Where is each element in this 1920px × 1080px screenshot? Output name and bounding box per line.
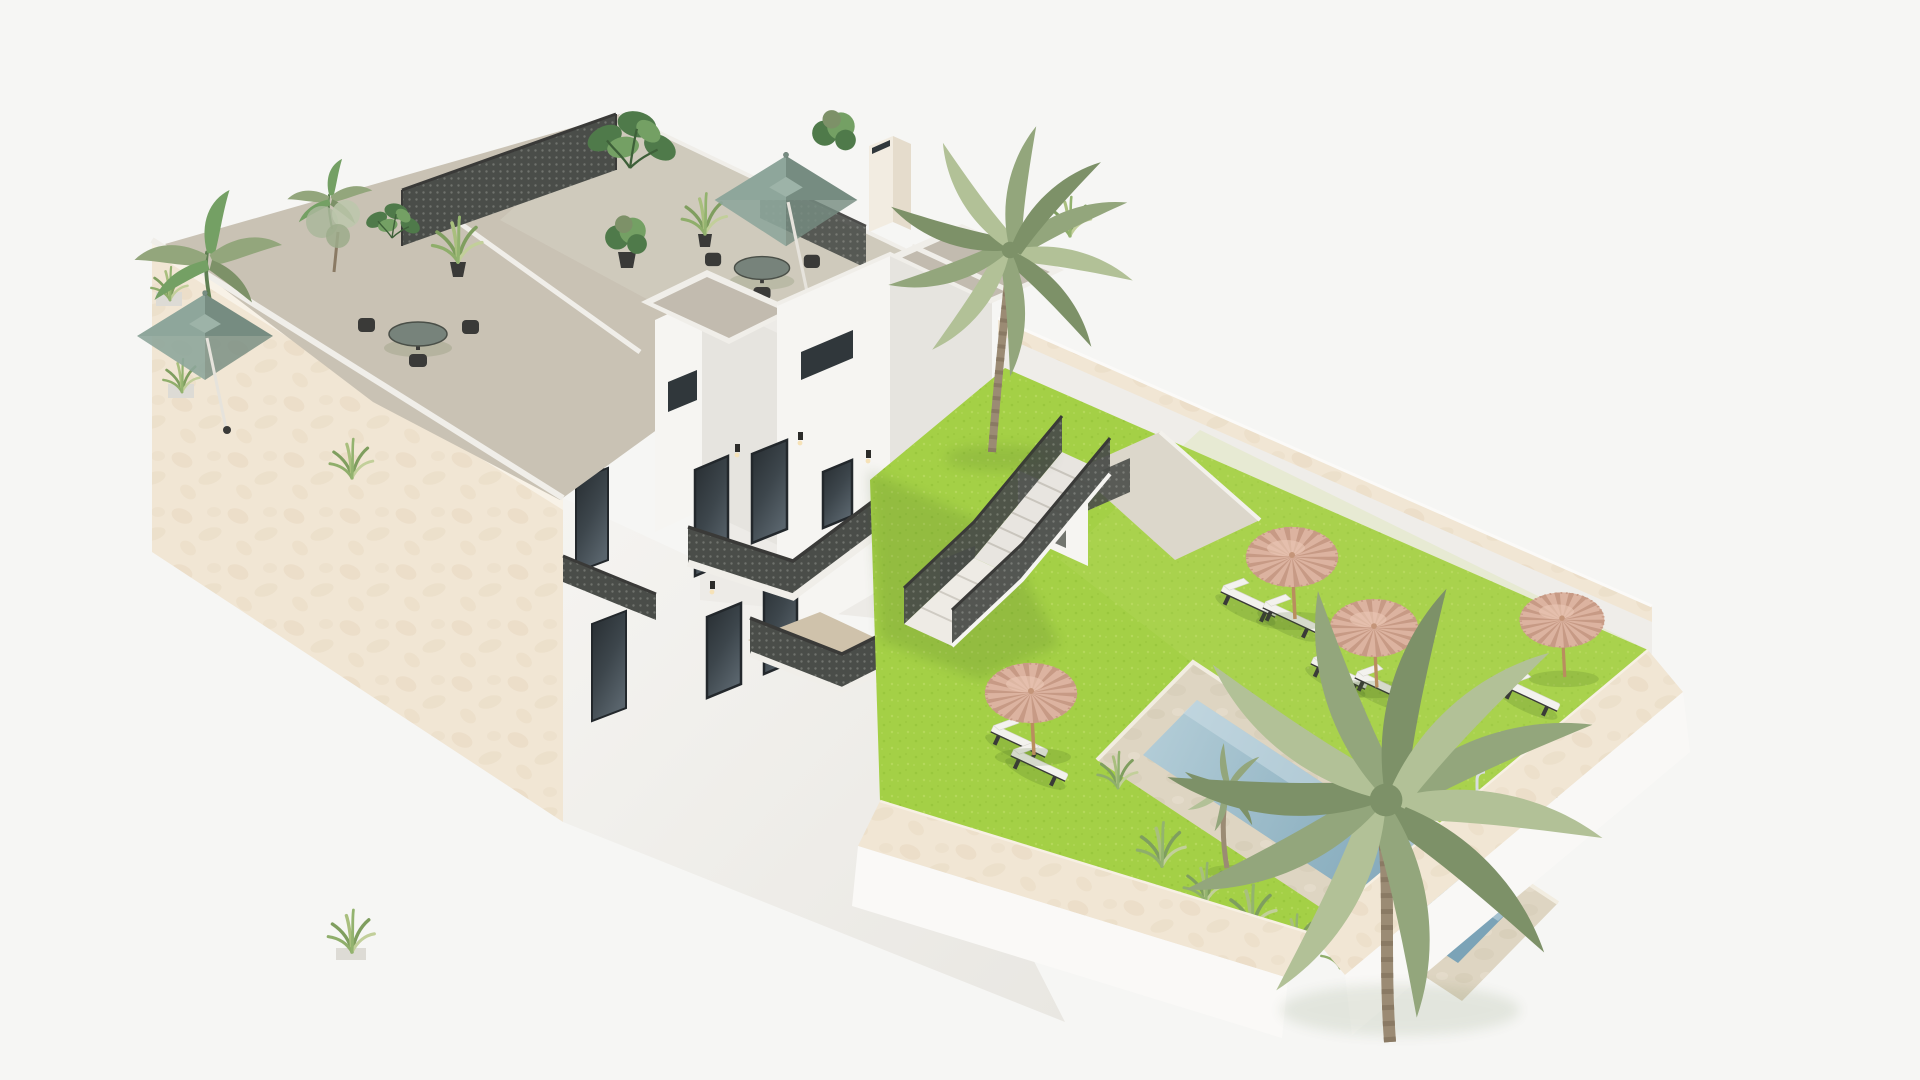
architectural-render: 3D architectural rendering of a Mediterr… [0,0,1920,1080]
facade-window [823,460,852,528]
render-canvas: 3D architectural rendering of a Mediterr… [0,0,1920,1080]
